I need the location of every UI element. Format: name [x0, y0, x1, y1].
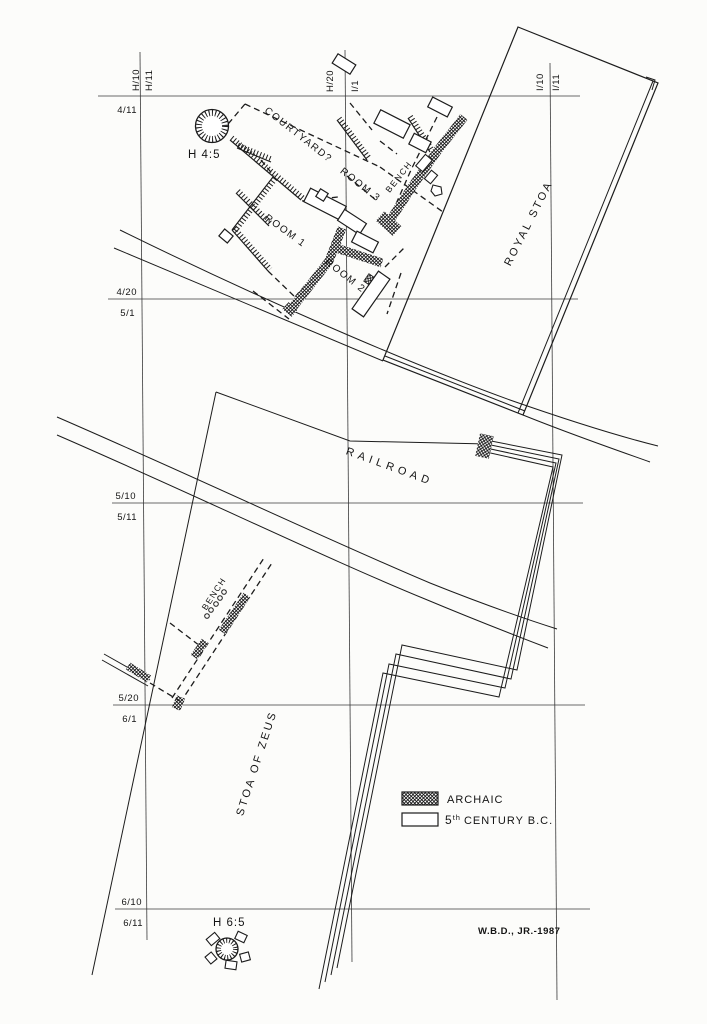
grid-label-h20: H/20 — [325, 70, 336, 92]
grid-label-5-1: 5/1 — [120, 308, 135, 319]
zeus-excavation-north-boundary — [216, 392, 488, 444]
fifth-c-block-room1-west — [219, 229, 233, 243]
grid-label-5-11: 5/11 — [117, 512, 137, 523]
credit-signature: W.B.D., JR.-1987 — [478, 926, 560, 937]
well-h65-stone-2 — [235, 931, 247, 942]
royal-stoa-inner-step-line — [518, 81, 653, 413]
legend-archaic-swatch — [402, 792, 438, 805]
room3-label: ROOM 3 — [338, 166, 383, 204]
grid-label-h10: H/10 — [131, 69, 142, 91]
grid-label-h11: H/11 — [144, 70, 155, 91]
grid-label-i10: I/10 — [535, 73, 546, 91]
drain-line-4 — [319, 452, 553, 989]
room3-north-dashed-wall — [350, 103, 372, 130]
bench-stone-3 — [431, 185, 442, 196]
room2-label: ROOM 2 — [323, 257, 368, 295]
grid-line-i10-i11 — [550, 63, 557, 1000]
grid-label-5-10: 5/10 — [116, 491, 137, 502]
zeus-excavation-west-boundary — [92, 392, 216, 975]
grid-label-4-20: 4/20 — [117, 287, 138, 298]
ticked-wall-courtyard-south — [230, 138, 303, 200]
ticked-wall-room1-southwest — [232, 228, 270, 271]
grid-label-i11: I/11 — [551, 74, 562, 91]
courtyard-label: COURTYARD? — [262, 105, 334, 165]
well-h65-stone-4 — [225, 960, 237, 969]
royal-stoa-bottom-double-line — [385, 356, 525, 411]
drain-archaic-end-block — [479, 438, 489, 455]
legend-fifth-century-label: 5thCENTURY B.C. — [445, 813, 553, 827]
drain-line-3 — [325, 448, 556, 982]
grid-line-h10-h11 — [140, 52, 147, 940]
zeus-west-wall-fragment — [102, 654, 183, 703]
legend-archaic-label: ARCHAIC — [447, 794, 504, 806]
well-h65-stone-3 — [240, 952, 251, 962]
legend: ARCHAIC 5thCENTURY B.C. — [402, 792, 553, 827]
rooms-complex: COURTYARD? ROOM 1 ROOM 2 ROOM 3 BENCH — [219, 54, 464, 319]
railway-north-line — [120, 230, 658, 446]
royal-stoa-label: ROYAL STOA — [502, 179, 555, 268]
grid-label-6-10: 6/10 — [122, 897, 143, 908]
well-h65-label: H 6:5 — [213, 917, 246, 929]
well-h45: H 4:5 — [188, 110, 229, 162]
zeus-archaic-bench-block-1 — [222, 595, 247, 632]
railway-north-inner-line-west — [114, 248, 383, 361]
royal-stoa: ROYAL STOA — [383, 27, 658, 415]
grid-lines — [98, 50, 590, 1000]
grid-label-i1: I/1 — [350, 80, 361, 92]
legend-fifth-text: CENTURY B.C. — [464, 815, 553, 827]
railway-south-line-2 — [57, 435, 548, 648]
grid-label-6-1: 6/1 — [122, 714, 137, 725]
room1-label: ROOM 1 — [262, 213, 308, 250]
well-h65: H 6:5 — [205, 917, 250, 970]
site-plan-drawing: H/10 H/11 H/20 I/1 I/10 I/11 4/11 4/20 5… — [0, 0, 707, 1024]
room2-east-dashed-wall — [385, 246, 406, 267]
drain-line-1 — [337, 440, 562, 968]
archaic-wall-room2-west-tip — [287, 306, 293, 313]
drain-line-2 — [331, 444, 559, 975]
grid-label-6-11: 6/11 — [123, 918, 143, 929]
bench-lower-label: BENCH — [199, 575, 228, 612]
stoa-of-zeus-label: STOA OF ZEUS — [234, 709, 279, 817]
stoa-of-zeus-area: BENCH STOA OF ZEUS — [102, 558, 280, 817]
legend-fifth-number: 5 — [445, 813, 453, 827]
well-h65-stone-5 — [205, 952, 217, 964]
grid-label-4-11: 4/11 — [117, 105, 137, 116]
zeus-bench-dashed-crosswall — [170, 623, 200, 646]
drain-wall-lines — [319, 438, 562, 989]
royal-stoa-outline — [383, 27, 658, 415]
room3-interior-dashed-line — [380, 141, 397, 154]
fifth-c-wall-room2-north — [352, 231, 379, 253]
site-plan-page: H/10 H/11 H/20 I/1 I/10 I/11 4/11 4/20 5… — [0, 0, 707, 1024]
grid-line-h20-i1 — [345, 50, 352, 962]
railroad-label: RAILROAD — [344, 446, 435, 489]
legend-fifth-century-swatch — [402, 813, 438, 826]
well-h45-label: H 4:5 — [188, 149, 221, 161]
grid-label-5-20: 5/20 — [119, 693, 140, 704]
ticked-wall-room3-west — [337, 118, 369, 160]
fifth-c-wall-room3-north — [374, 110, 410, 138]
railway-cut-lines — [57, 230, 658, 975]
legend-fifth-superscript: th — [453, 813, 461, 822]
fifth-c-wall-bench-north — [428, 97, 453, 117]
